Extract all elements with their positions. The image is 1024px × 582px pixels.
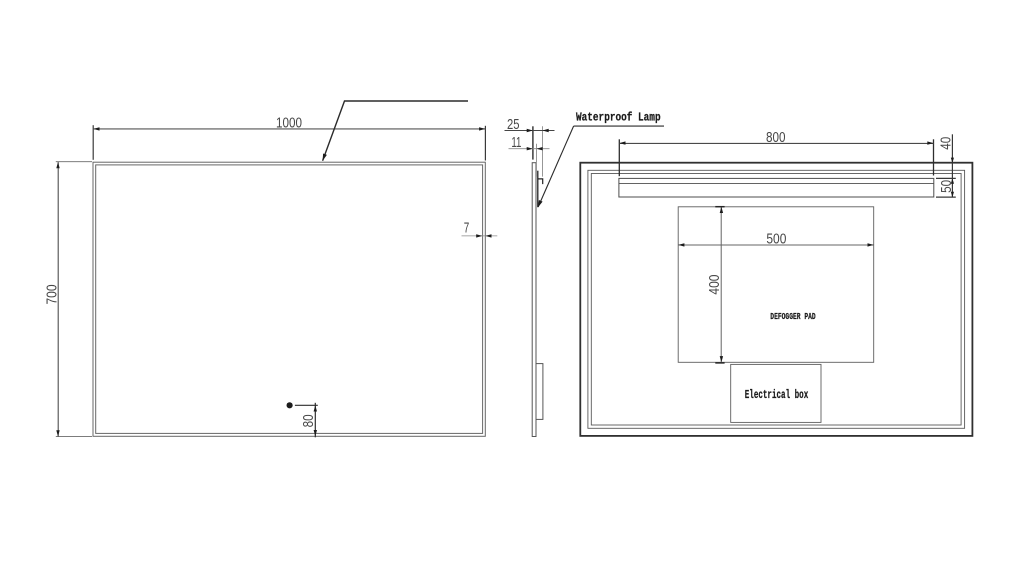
svg-text:700: 700 xyxy=(45,285,61,305)
svg-text:7: 7 xyxy=(464,220,470,236)
svg-text:1000: 1000 xyxy=(276,116,302,132)
svg-text:11: 11 xyxy=(511,135,521,151)
svg-text:800: 800 xyxy=(766,130,786,146)
svg-text:500: 500 xyxy=(766,231,786,247)
svg-text:40: 40 xyxy=(939,137,955,150)
svg-text:400: 400 xyxy=(707,275,723,295)
svg-text:Electrical box: Electrical box xyxy=(745,388,809,402)
svg-text:25: 25 xyxy=(507,117,520,133)
svg-text:50: 50 xyxy=(939,180,955,193)
svg-text:DEFOGGER PAD: DEFOGGER PAD xyxy=(770,311,816,322)
svg-text:80: 80 xyxy=(301,414,317,427)
svg-text:Waterproof Lamp: Waterproof Lamp xyxy=(576,111,661,125)
